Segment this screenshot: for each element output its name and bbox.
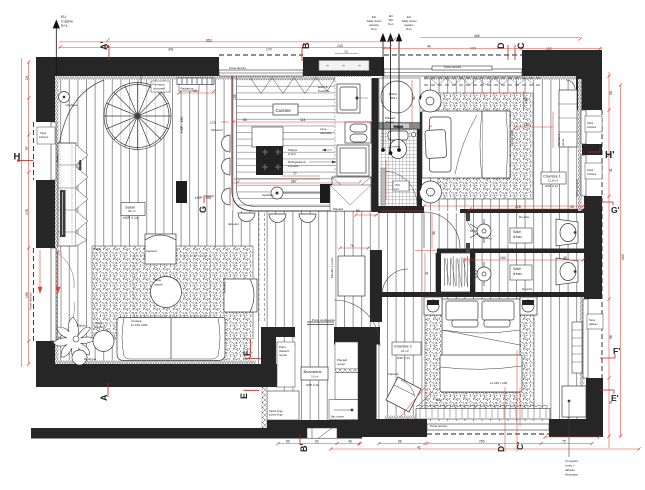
svg-text:Gaines: Gaines (394, 124, 404, 128)
svg-text:Applique: Applique (66, 103, 78, 107)
svg-text:ouvert: ouvert (279, 353, 288, 357)
svg-text:Porte fenêtre: Porte fenêtre (444, 65, 462, 69)
svg-text:intérieur: intérieur (39, 135, 49, 139)
svg-text:G: G (198, 206, 208, 213)
svg-text:HSP 2.10: HSP 2.10 (306, 383, 319, 387)
svg-text:R+1: R+1 (388, 22, 394, 26)
svg-text:R+1: R+1 (371, 27, 377, 31)
svg-text:HSP 2.14: HSP 2.14 (123, 216, 138, 220)
svg-text:Cuisine: Cuisine (276, 108, 292, 113)
svg-text:Sèche-linge: Sèche-linge (269, 409, 283, 413)
svg-text:122: 122 (546, 47, 552, 51)
svg-text:653: 653 (206, 39, 212, 43)
svg-text:Store: Store (589, 318, 596, 322)
svg-text:Lit 140 x200: Lit 140 x200 (510, 129, 514, 146)
svg-text:Tabouret: Tabouret (211, 128, 223, 132)
svg-text:Douche: Douche (519, 215, 530, 219)
svg-text:48: 48 (563, 256, 567, 260)
svg-text:D': D' (496, 444, 506, 452)
svg-text:96: 96 (609, 335, 613, 339)
svg-text:11.8 m²: 11.8 m² (548, 179, 558, 183)
svg-text:E': E' (611, 393, 619, 403)
svg-text:66: 66 (243, 118, 247, 122)
svg-text:164: 164 (500, 256, 506, 260)
svg-text:2 posés: 2 posés (288, 164, 299, 168)
svg-text:143: 143 (337, 44, 343, 48)
svg-text:Store: Store (40, 131, 47, 135)
svg-text:D: D (496, 42, 506, 49)
svg-text:Cuisine: Cuisine (61, 20, 73, 24)
svg-text:tableau: tableau (589, 322, 598, 326)
svg-text:HSP : 195: HSP : 195 (180, 117, 184, 133)
svg-text:41: 41 (425, 271, 429, 275)
svg-text:Fauteuil: Fauteuil (146, 249, 157, 253)
svg-text:F': F' (613, 346, 620, 356)
svg-text:77: 77 (293, 172, 297, 176)
svg-text:130: 130 (524, 123, 530, 127)
svg-text:Salle: Salle (513, 267, 521, 271)
svg-text:Douche: Douche (522, 287, 533, 291)
svg-text:36: 36 (432, 231, 436, 235)
svg-text:97: 97 (25, 146, 29, 150)
svg-text:45: 45 (570, 205, 574, 209)
svg-text:Rodrigue: Rodrigue (84, 357, 97, 361)
svg-text:Table: Table (154, 278, 162, 282)
svg-text:tableau: tableau (565, 468, 575, 472)
svg-text:30 m²: 30 m² (128, 209, 136, 213)
svg-text:40: 40 (427, 45, 431, 49)
svg-text:196: 196 (25, 292, 29, 298)
svg-text:367: 367 (291, 180, 297, 184)
svg-text:Lit 160 x200: Lit 160 x200 (131, 323, 148, 327)
svg-text:182: 182 (524, 97, 528, 103)
svg-text:EU: EU (61, 15, 66, 19)
svg-text:170: 170 (266, 48, 272, 52)
svg-text:42: 42 (417, 446, 421, 450)
svg-text:Poubelle: Poubelle (318, 89, 330, 93)
svg-text:178: 178 (25, 209, 29, 215)
svg-text:58: 58 (609, 91, 613, 95)
svg-text:Placard: Placard (333, 207, 344, 211)
svg-text:Store: Store (587, 168, 594, 172)
svg-text:Porte fenêtre: Porte fenêtre (29, 292, 33, 310)
svg-text:B': B' (299, 443, 309, 452)
svg-text:Meuble à poser: Meuble à poser (330, 257, 334, 278)
svg-text:3.5 m²: 3.5 m² (311, 375, 318, 379)
svg-text:Pouf: Pouf (436, 398, 442, 402)
svg-text:Buanderie: Buanderie (304, 369, 323, 374)
svg-text:& four: & four (288, 152, 296, 156)
svg-text:Tapis: Tapis (94, 247, 102, 251)
svg-text:31: 31 (412, 96, 416, 100)
svg-text:72: 72 (344, 50, 348, 54)
svg-text:70: 70 (350, 244, 354, 248)
svg-text:Compteur: Compteur (565, 459, 578, 463)
svg-text:C': C' (515, 442, 525, 450)
svg-text:1m²: 1m² (394, 187, 399, 191)
svg-text:d'eau: d'eau (513, 272, 522, 276)
svg-text:B: B (301, 42, 311, 49)
svg-text:H': H' (605, 150, 615, 161)
svg-text:décoratif: décoratif (154, 87, 166, 91)
svg-text:d'eau: d'eau (513, 235, 522, 239)
svg-text:Salle: Salle (513, 230, 521, 234)
svg-text:41: 41 (609, 168, 613, 172)
svg-text:Lit 160 x 200: Lit 160 x 200 (490, 381, 508, 385)
svg-text:Plante: Plante (77, 324, 86, 328)
svg-text:24: 24 (25, 76, 29, 80)
svg-text:466: 466 (474, 34, 480, 38)
svg-text:Radiateur: Radiateur (181, 87, 194, 91)
svg-text:ouvert: ouvert (337, 362, 346, 366)
svg-text:électrique: électrique (565, 473, 578, 477)
svg-text:Fauteuil: Fauteuil (223, 282, 227, 293)
svg-text:R+1: R+1 (61, 24, 68, 28)
svg-text:Porte fenêtre: Porte fenêtre (229, 66, 247, 70)
svg-text:46: 46 (348, 440, 352, 444)
svg-text:Meuble: Meuble (78, 160, 82, 170)
svg-text:228: 228 (515, 205, 521, 209)
svg-text:Fauteuil: Fauteuil (388, 372, 399, 376)
svg-text:E: E (239, 393, 249, 399)
svg-text:vaisselle: vaisselle (320, 131, 332, 135)
svg-text:intérieur: intérieur (587, 125, 597, 129)
svg-text:poser: poser (561, 138, 565, 146)
svg-text:250: 250 (479, 440, 485, 444)
svg-text:intérieur: intérieur (587, 172, 597, 176)
svg-text:basse: basse (155, 283, 163, 287)
svg-text:A: A (99, 394, 109, 401)
svg-text:114: 114 (300, 118, 306, 122)
svg-text:cactus: cactus (95, 325, 104, 329)
svg-text:Porte fenêtre: Porte fenêtre (430, 424, 448, 428)
svg-text:Store: Store (587, 121, 594, 125)
svg-text:170: 170 (210, 121, 216, 125)
svg-text:R+1: R+1 (406, 27, 412, 31)
svg-text:300 L: 300 L (390, 96, 398, 100)
svg-text:170: 170 (470, 47, 476, 51)
svg-text:Linky +: Linky + (565, 464, 575, 468)
svg-text:136: 136 (233, 94, 237, 100)
svg-text:tabouret: tabouret (228, 222, 239, 226)
svg-text:HSP 2.14: HSP 2.14 (545, 184, 558, 188)
svg-text:15 m²: 15 m² (401, 349, 409, 353)
svg-text:50: 50 (286, 440, 290, 444)
svg-text:62: 62 (315, 440, 319, 444)
svg-text:341: 341 (168, 48, 174, 52)
svg-text:Applique: Applique (262, 193, 274, 197)
svg-text:96: 96 (398, 440, 402, 444)
svg-text:G': G' (611, 205, 620, 215)
svg-text:C: C (516, 42, 526, 49)
svg-text:HSP : 195: HSP : 195 (195, 196, 211, 200)
svg-text:HSP 2.14: HSP 2.14 (397, 356, 410, 360)
svg-text:75: 75 (562, 440, 566, 444)
svg-text:80: 80 (356, 209, 360, 213)
svg-text:90: 90 (193, 89, 197, 93)
svg-text:Chambre 2: Chambre 2 (394, 345, 412, 349)
svg-text:Bac à laver: Bac à laver (331, 415, 344, 419)
svg-text:Sèche serviette: Sèche serviette (575, 179, 579, 197)
svg-text:&Lave-linge: &Lave-linge (269, 413, 283, 417)
svg-text:Porte coulissante: Porte coulissante (312, 318, 335, 322)
svg-text:263: 263 (621, 254, 625, 260)
